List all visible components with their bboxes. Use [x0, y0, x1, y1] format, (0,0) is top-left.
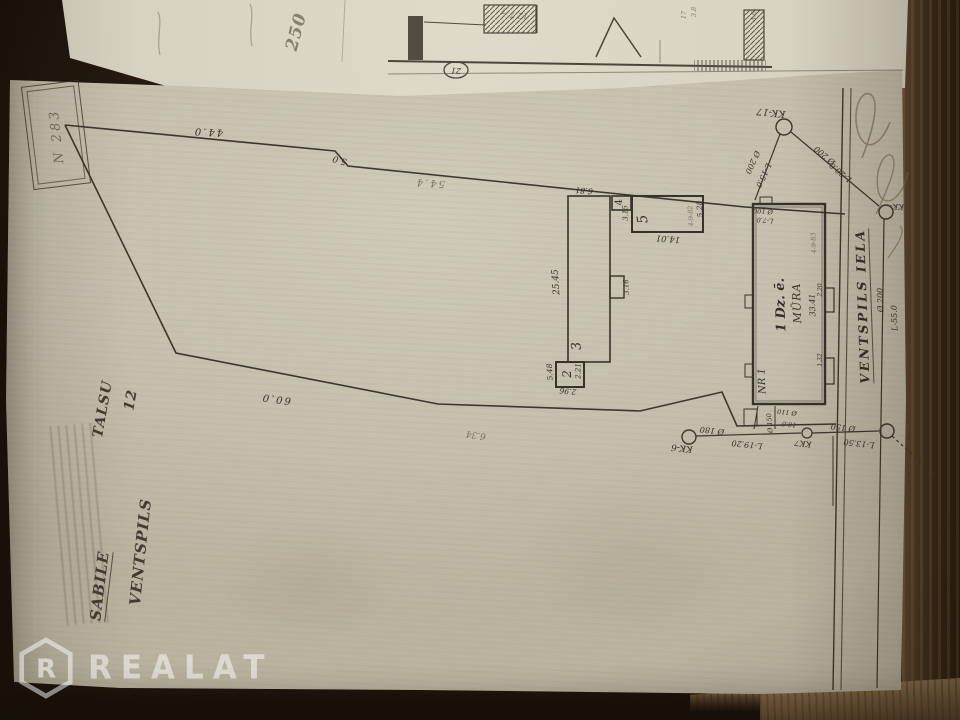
manhole-kk6: KK-6: [671, 441, 693, 452]
realat-brand-text: REALAT: [88, 649, 274, 687]
top-sheet-circled-number: 21: [451, 66, 462, 75]
address-street: VENTSPILS: [128, 498, 154, 606]
top-sheet-dim2: 17: [681, 11, 688, 19]
building-1-nr: NR 1: [758, 368, 769, 394]
building-3-width: 6.81: [575, 185, 593, 194]
annex-dim: 3.16: [623, 279, 631, 295]
house-pipe-length: L-7.0: [756, 216, 773, 224]
street-pipe-length: L-55.0: [891, 305, 900, 331]
manhole-street: KK-: [890, 202, 905, 211]
manhole-kk7: KK7: [794, 438, 812, 448]
pipe3-diameter: Ø 180: [699, 425, 724, 436]
top-sheet-number: 250: [284, 11, 310, 53]
yard-pipe-length: 16.0: [781, 420, 796, 428]
address-district: TALSU: [91, 379, 115, 438]
top-sheet-127: 12.7: [510, 10, 528, 20]
building-5-number: 5: [635, 213, 650, 224]
yard-pipe-diameter: Ø 150: [766, 413, 774, 433]
building-5-note: 4-9-82: [687, 205, 695, 226]
building-3-number: 3: [570, 341, 584, 351]
house-pipe-diameter: Ø 100: [753, 207, 773, 215]
yard-pipe2-diameter: Ø 110: [777, 408, 797, 417]
building-1-label: 1 Dz. ē.: [774, 278, 789, 332]
dim-bottom-60: 60.0: [260, 391, 291, 405]
pipe2-length: L-20.0: [829, 161, 854, 184]
building-5-width: 5.28: [696, 200, 704, 217]
pipe1-length: L-15.0: [754, 162, 772, 189]
dim-jog-5: 5.0: [332, 153, 348, 165]
building-5-length: 14.01: [656, 233, 681, 243]
building-1-porch1: 2.20: [818, 283, 824, 296]
pipe1-diameter: Ø 200: [743, 149, 761, 174]
photo-of-survey-plan: N 283 44.0 5.0 54.4 60.0 6.34 25.45 6.81…: [0, 0, 960, 720]
dim-top-44: 44.0: [193, 125, 224, 137]
address-number: 12: [122, 388, 140, 412]
registry-number: N 283: [48, 108, 67, 164]
building-2-length: 2.96: [559, 386, 576, 395]
realat-watermark: R REALAT: [18, 634, 274, 702]
top-sheet-dim1: 3.8: [691, 7, 698, 17]
building-1-note: 4-9-83: [810, 232, 818, 253]
street-pipe-diameter: Ø 200: [877, 288, 886, 313]
manhole-kk17: KK-17: [756, 106, 786, 118]
dim-top-54: 54.4: [415, 176, 446, 188]
building-2-note: 2.21: [576, 363, 583, 379]
street-name: VENTSPILS IELA: [854, 228, 874, 384]
building-2-number: 2: [561, 370, 573, 378]
building-1-porch2: 1.32: [818, 353, 824, 366]
pipe4-diameter: Ø 150: [830, 422, 855, 433]
building-1-material: MŪRA: [791, 282, 803, 323]
realat-logo-hexagon: R: [18, 637, 74, 699]
dim-bottom-634: 6.34: [465, 428, 486, 440]
address-town: SABILE: [88, 550, 113, 622]
building-1-length: 33.41: [809, 293, 818, 316]
top-sheet-dim3: 4.6: [751, 11, 758, 21]
plan-labels: N 283 44.0 5.0 54.4 60.0 6.34 25.45 6.81…: [0, 0, 960, 720]
building-4-dim: 3.15: [622, 205, 630, 221]
realat-logo-letter: R: [36, 654, 56, 684]
pipe3-length: L-19.20: [731, 438, 763, 449]
building-3-length: 25.45: [552, 269, 563, 295]
pipe4-length: L-13.50: [843, 437, 875, 448]
building-2-width: 5.48: [546, 363, 554, 380]
top-sheet-7: 7: [501, 4, 507, 13]
